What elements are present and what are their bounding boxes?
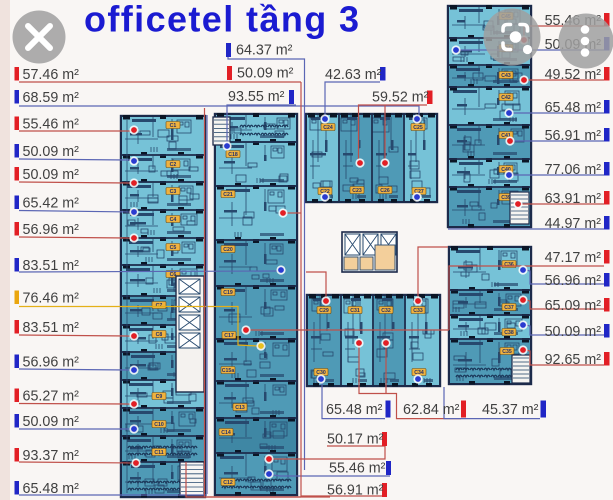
svg-text:42.63 m²: 42.63 m²	[325, 67, 382, 83]
svg-text:49.52 m²: 49.52 m²	[545, 67, 602, 83]
svg-text:C24: C24	[323, 125, 333, 131]
svg-text:C8: C8	[156, 332, 163, 338]
svg-text:C26: C26	[380, 188, 390, 194]
svg-text:C42: C42	[501, 95, 511, 101]
svg-text:63.91 m²: 63.91 m²	[545, 191, 602, 207]
svg-text:C18: C18	[228, 152, 238, 158]
svg-text:C36: C36	[504, 262, 514, 268]
svg-text:C20: C20	[223, 247, 233, 253]
svg-text:C21: C21	[223, 192, 233, 198]
svg-text:59.52 m²: 59.52 m²	[372, 90, 429, 106]
svg-text:C3: C3	[170, 189, 177, 195]
svg-text:57.46 m²: 57.46 m²	[23, 67, 80, 83]
svg-text:C11: C11	[154, 450, 163, 456]
svg-text:65.48 m²: 65.48 m²	[23, 481, 80, 497]
svg-text:65.48 m²: 65.48 m²	[326, 402, 383, 418]
svg-text:56.91 m²: 56.91 m²	[545, 128, 602, 144]
svg-text:C13: C13	[235, 405, 245, 411]
svg-text:C5: C5	[170, 245, 177, 251]
svg-text:65.42 m²: 65.42 m²	[23, 196, 80, 212]
svg-text:C15a: C15a	[222, 368, 235, 374]
svg-text:44.97 m²: 44.97 m²	[545, 216, 602, 232]
svg-text:C12: C12	[223, 480, 233, 486]
svg-text:50.17 m²: 50.17 m²	[327, 432, 384, 448]
svg-text:C14: C14	[221, 430, 231, 436]
svg-text:93.37 m²: 93.37 m²	[23, 448, 80, 464]
svg-text:50.09 m²: 50.09 m²	[23, 167, 80, 183]
svg-text:C32: C32	[381, 308, 391, 314]
svg-text:C38: C38	[504, 330, 514, 336]
svg-text:76.46 m²: 76.46 m²	[23, 291, 80, 307]
svg-text:56.91 m²: 56.91 m²	[327, 483, 384, 499]
svg-text:officetel tầng 3: officetel tầng 3	[84, 0, 360, 40]
svg-text:C17: C17	[224, 333, 234, 339]
svg-text:56.96 m²: 56.96 m²	[23, 355, 80, 371]
svg-text:92.65 m²: 92.65 m²	[545, 352, 602, 368]
svg-text:55.46 m²: 55.46 m²	[23, 117, 80, 133]
svg-text:50.09 m²: 50.09 m²	[23, 144, 80, 160]
svg-text:56.96 m²: 56.96 m²	[545, 273, 602, 289]
svg-text:65.48 m²: 65.48 m²	[545, 100, 602, 116]
svg-text:50.09 m²: 50.09 m²	[237, 66, 294, 82]
svg-text:47.17 m²: 47.17 m²	[545, 250, 602, 266]
svg-text:45.37 m²: 45.37 m²	[482, 402, 539, 418]
svg-text:62.84 m²: 62.84 m²	[403, 402, 460, 418]
svg-text:56.96 m²: 56.96 m²	[23, 222, 80, 238]
svg-text:C9: C9	[156, 394, 163, 400]
svg-text:83.51 m²: 83.51 m²	[23, 258, 80, 274]
svg-text:C19: C19	[223, 290, 233, 296]
svg-text:50.09 m²: 50.09 m²	[23, 414, 80, 430]
svg-text:64.37 m²: 64.37 m²	[236, 43, 293, 59]
svg-text:C25: C25	[413, 125, 423, 131]
svg-text:C4: C4	[170, 217, 177, 223]
svg-text:C37: C37	[504, 305, 514, 311]
svg-text:C43: C43	[501, 73, 511, 79]
svg-text:93.55 m²: 93.55 m²	[228, 89, 285, 105]
svg-text:C2: C2	[170, 162, 177, 168]
svg-text:C23: C23	[352, 188, 362, 194]
svg-text:C10: C10	[154, 422, 164, 428]
svg-text:77.06 m²: 77.06 m²	[545, 162, 602, 178]
svg-text:55.46 m²: 55.46 m²	[329, 461, 386, 477]
svg-text:C1: C1	[170, 123, 177, 129]
svg-text:68.59 m²: 68.59 m²	[23, 90, 80, 106]
svg-text:C35: C35	[502, 349, 512, 355]
svg-text:C31: C31	[350, 308, 360, 314]
svg-text:C29: C29	[319, 308, 329, 314]
svg-text:65.09 m²: 65.09 m²	[545, 298, 602, 314]
svg-text:C33: C33	[413, 308, 423, 314]
svg-text:83.51 m²: 83.51 m²	[23, 320, 80, 336]
svg-text:65.27 m²: 65.27 m²	[23, 389, 80, 405]
svg-text:50.09 m²: 50.09 m²	[545, 324, 602, 340]
